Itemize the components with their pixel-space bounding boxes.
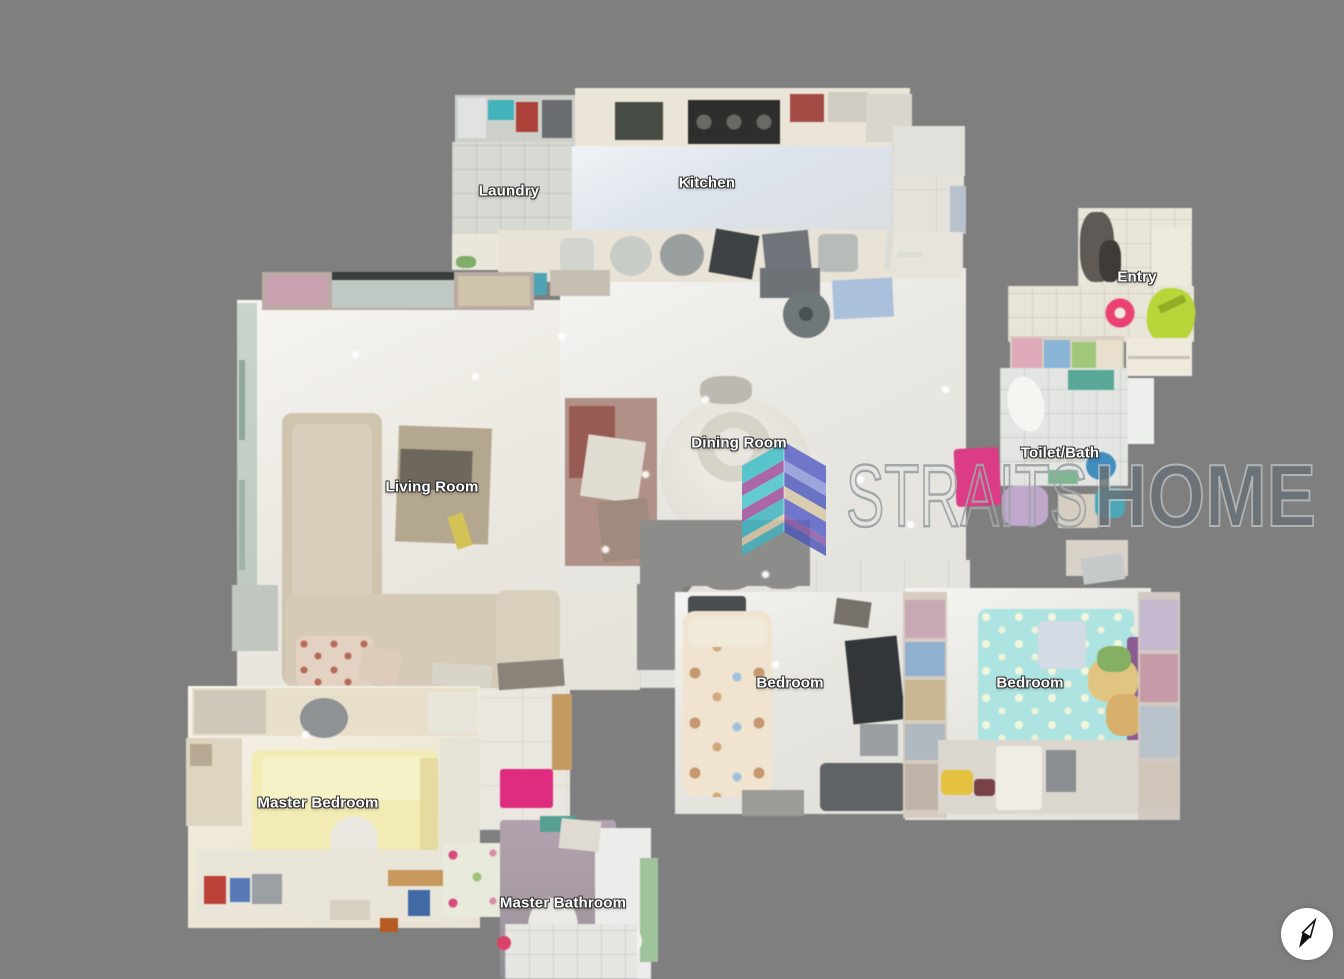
scan-fragment — [1072, 342, 1096, 368]
standing-fan-hub — [799, 307, 813, 321]
bed-pillows — [262, 756, 427, 800]
scan-fragment — [252, 874, 282, 904]
scan-fragment — [1140, 706, 1178, 758]
watermark-brand-text: STRAITS HOME — [846, 450, 1326, 546]
floor-glint — [300, 730, 311, 739]
scan-fragment — [239, 360, 245, 440]
scan-fragment — [194, 690, 266, 734]
scan-fragment — [833, 598, 871, 629]
plush-toy — [1097, 646, 1131, 672]
bathroom-floor — [505, 924, 637, 979]
plant — [456, 256, 476, 268]
compass-needle-icon — [1295, 918, 1319, 950]
room-label-dining-room: Dining Room — [691, 435, 787, 452]
room-label-toilet-bath: Toilet/Bath — [1021, 445, 1100, 462]
room-label-master-bathroom: Master Bathroom — [500, 895, 626, 912]
floral-mat — [443, 843, 505, 917]
desk-chair — [860, 724, 898, 756]
desk-monitor — [845, 636, 905, 725]
scan-fragment — [820, 763, 906, 811]
room-label-living-room: Living Room — [385, 479, 478, 496]
pillow — [688, 617, 767, 647]
scan-fragment — [330, 900, 370, 920]
scan-fragment — [190, 744, 212, 766]
scan-fragment — [431, 662, 492, 687]
scan-fragment — [230, 878, 250, 902]
scan-fragment — [332, 272, 454, 280]
room-label-master-bedroom: Master Bedroom — [257, 795, 378, 812]
balcony-window — [237, 303, 257, 633]
appliance — [660, 234, 704, 276]
scan-fragment — [266, 276, 328, 306]
appliance — [709, 229, 760, 280]
connector-mat-pink — [500, 769, 553, 808]
scan-fragment — [1012, 338, 1042, 368]
scan-fragment — [893, 126, 965, 176]
floor-glint — [556, 332, 567, 341]
scan-fragment — [497, 936, 511, 950]
scan-fragment — [239, 480, 245, 570]
appliance — [610, 236, 652, 276]
scan-fragment — [550, 270, 610, 296]
scan-fragment — [905, 642, 945, 676]
scan-fragment — [559, 818, 602, 852]
scan-fragment — [905, 600, 945, 638]
scan-fragment — [1140, 762, 1178, 808]
floor-glint — [770, 660, 781, 669]
brand-straits-text: STRAITS — [846, 450, 1088, 545]
room-label-bedroom-2: Bedroom — [996, 675, 1063, 692]
room-label-kitchen: Kitchen — [679, 175, 735, 192]
floor-glint — [600, 545, 611, 554]
floor-mat-blue — [832, 277, 894, 319]
scan-fragment — [1140, 600, 1178, 650]
scan-fragment — [497, 659, 565, 691]
scan-fragment — [950, 186, 966, 234]
straitshome-logo-icon — [742, 442, 826, 556]
dollhouse-3d-view[interactable]: STRAITS HOME Laundry Kitchen Entry Dinin… — [0, 0, 1344, 979]
scan-fragment — [1140, 654, 1178, 702]
scan-fragment — [458, 276, 530, 306]
scan-fragment — [1046, 750, 1076, 792]
scan-fragment — [1080, 553, 1125, 585]
floor-glint — [940, 385, 951, 394]
brand-home-text: HOME — [1094, 450, 1316, 545]
scan-fragment — [905, 680, 945, 720]
compass-button[interactable] — [1281, 908, 1333, 960]
scan-fragment — [974, 779, 995, 796]
scan-fragment — [1128, 378, 1154, 444]
room-label-entry: Entry — [1117, 269, 1156, 286]
scan-fragment — [516, 102, 538, 132]
scan-fragment — [488, 100, 514, 120]
scan-artifact — [897, 252, 923, 257]
scan-fragment — [458, 98, 486, 138]
scan-fragment — [204, 876, 226, 904]
floor-glint — [760, 570, 771, 579]
scan-fragment — [790, 94, 824, 122]
round-doormat-pink — [1102, 292, 1138, 334]
scan-fragment — [408, 890, 430, 916]
floor-glint — [640, 470, 651, 479]
scan-fragment — [428, 692, 478, 734]
appliance — [560, 238, 594, 274]
floor-glint — [350, 350, 361, 359]
room-label-laundry: Laundry — [479, 183, 540, 200]
washing-machine — [542, 100, 572, 138]
scan-fragment — [941, 770, 973, 795]
appliance — [818, 234, 858, 272]
scan-fragment — [742, 790, 804, 816]
scan-fragment — [640, 858, 658, 962]
scan-fragment — [380, 918, 398, 932]
plaid-pillow — [1038, 621, 1086, 669]
floor-glint — [700, 395, 711, 404]
scan-fragment — [1096, 340, 1122, 368]
scan-fragment — [828, 92, 868, 122]
scan-fragment — [440, 738, 480, 860]
room-label-bedroom-1: Bedroom — [756, 675, 823, 692]
floor-glint — [470, 372, 481, 381]
scan-fragment — [232, 585, 278, 651]
scan-fragment — [996, 746, 1042, 810]
scan-fragment — [1128, 356, 1190, 359]
scan-fragment — [580, 434, 646, 503]
bath-shelf — [1068, 370, 1114, 390]
kitchen-sink — [615, 102, 663, 140]
door-frame — [552, 694, 572, 770]
stove — [688, 100, 780, 144]
scan-fragment — [1044, 340, 1070, 368]
